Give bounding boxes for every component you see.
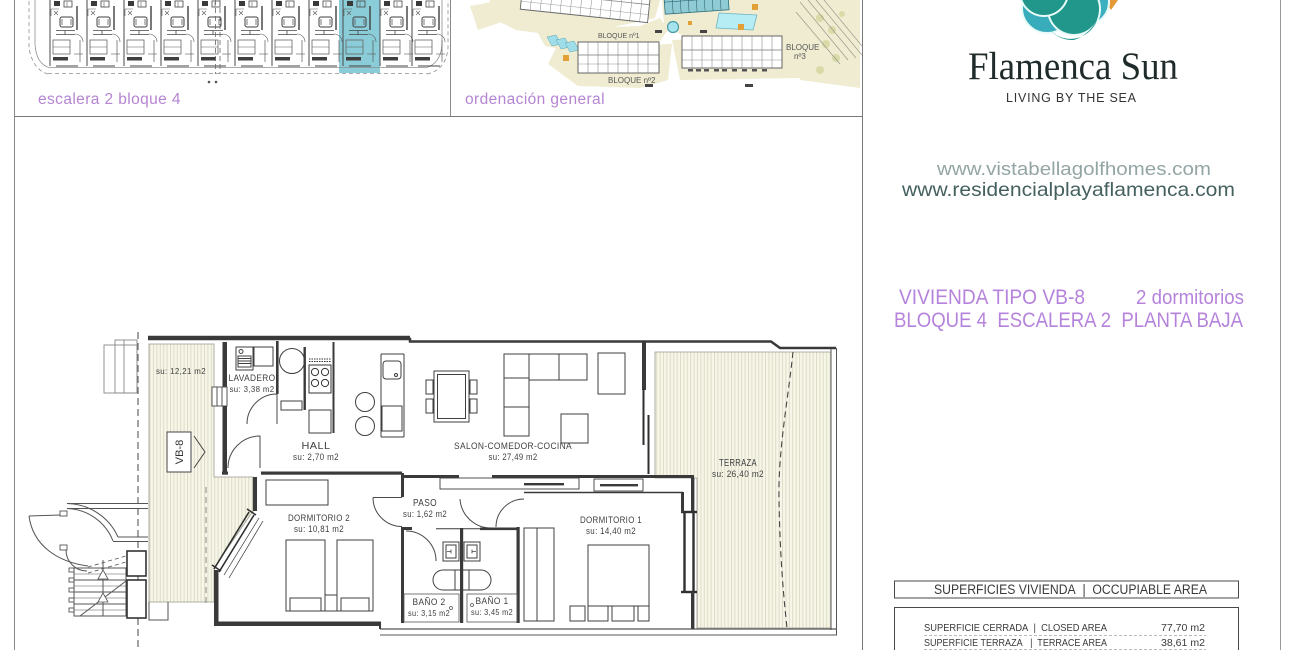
svg-text:su: 10,81 m2: su: 10,81 m2 (294, 524, 344, 534)
svg-text:HALL: HALL (302, 441, 331, 452)
svg-text:PASO: PASO (413, 498, 437, 509)
svg-text:su: 14,40 m2: su: 14,40 m2 (586, 526, 636, 536)
svg-text:Flamenca Sun: Flamenca Sun (968, 45, 1178, 88)
svg-text:su: 27,49 m2: su: 27,49 m2 (489, 452, 538, 462)
svg-text:www.residencialplayaflamenca.c: www.residencialplayaflamenca.com (901, 179, 1235, 201)
svg-text:LAVADERO: LAVADERO (229, 373, 276, 384)
svg-text:escalera 2 bloque 4: escalera 2 bloque 4 (38, 91, 181, 108)
svg-text:TERRAZA: TERRAZA (719, 458, 757, 469)
svg-text:DORMITORIO 1: DORMITORIO 1 (580, 515, 642, 526)
svg-text:SUPERFICIE CERRADA | CLOSED: SUPERFICIE CERRADA | CLOSED AREA (924, 622, 1107, 634)
svg-text:ordenación general: ordenación general (465, 91, 605, 108)
svg-text:su: 3,38 m2: su: 3,38 m2 (230, 384, 275, 394)
svg-text:2 dormitorios: 2 dormitorios (1136, 286, 1244, 309)
svg-text:su: 1,62 m2: su: 1,62 m2 (403, 509, 447, 519)
svg-text:LIVING BY THE SEA: LIVING BY THE SEA (1006, 91, 1137, 105)
svg-text:77,70 m2: 77,70 m2 (1161, 622, 1205, 634)
svg-text:su: 3,15 m2: su: 3,15 m2 (408, 608, 450, 618)
svg-text:su: 2,70 m2: su: 2,70 m2 (293, 452, 339, 462)
svg-text:BLOQUE nº1: BLOQUE nº1 (598, 33, 640, 40)
svg-text:su: 12,21 m2: su: 12,21 m2 (156, 366, 206, 376)
svg-text:BLOQUE: BLOQUE (786, 43, 819, 52)
svg-text:www.vistabellagolfhomes.com: www.vistabellagolfhomes.com (936, 159, 1211, 179)
svg-text:BLOQUE 4 ESCALERA 2 PLANTA B: BLOQUE 4 ESCALERA 2 PLANTA BAJA (894, 309, 1243, 332)
svg-text:BAÑO 2: BAÑO 2 (413, 597, 446, 608)
svg-text:SUPERFICIES VIVIENDA | OCCUP: SUPERFICIES VIVIENDA | OCCUPIABLE AREA (934, 582, 1207, 597)
svg-text:su: 26,40 m2: su: 26,40 m2 (712, 469, 764, 479)
svg-text:nº3: nº3 (794, 52, 806, 61)
svg-text:38,61 m2: 38,61 m2 (1161, 637, 1205, 649)
svg-text:DORMITORIO 2: DORMITORIO 2 (288, 513, 350, 524)
svg-text:BAÑO 1: BAÑO 1 (476, 596, 509, 607)
svg-text:BLOQUE nº2: BLOQUE nº2 (608, 76, 656, 85)
svg-text:su: 3,45 m2: su: 3,45 m2 (471, 607, 513, 617)
svg-text:SUPERFICIE TERRAZA | TERRAC: SUPERFICIE TERRAZA | TERRACE AREA (924, 637, 1107, 649)
svg-text:VIVIENDA TIPO VB-8: VIVIENDA TIPO VB-8 (899, 286, 1085, 309)
svg-text:SALON-COMEDOR-COCINA: SALON-COMEDOR-COCINA (454, 441, 572, 452)
svg-text:VB-8: VB-8 (174, 440, 186, 464)
